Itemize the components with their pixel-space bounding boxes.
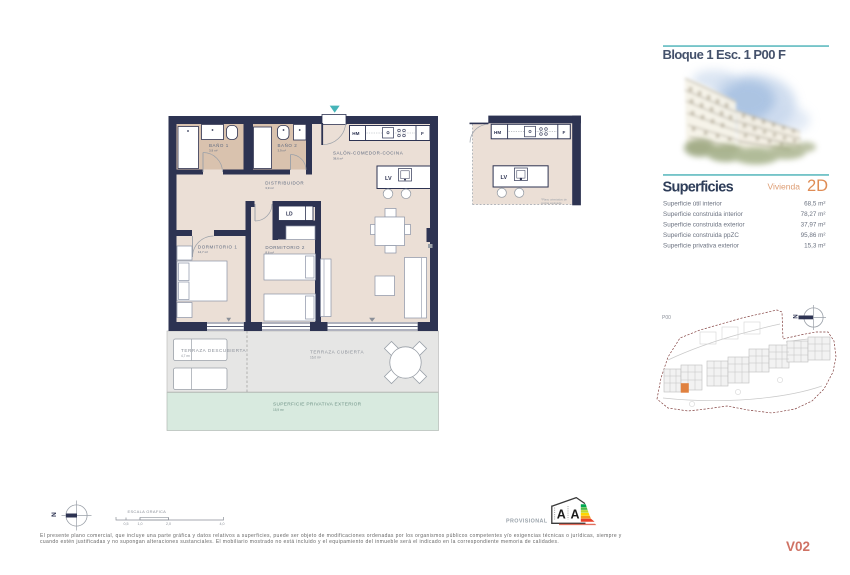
svg-text:LD: LD	[286, 212, 293, 218]
svg-text:HM: HM	[352, 131, 359, 136]
svg-text:3,9 m²: 3,9 m²	[209, 149, 218, 153]
svg-text:SUPERFICIE PRIVATIVA EXTERIOR: SUPERFICIE PRIVATIVA EXTERIOR	[273, 402, 362, 408]
svg-text:15,9 m²: 15,9 m²	[273, 408, 284, 412]
svg-text:Superficie útil interior: Superficie útil interior	[663, 200, 722, 207]
svg-text:DORMITORIO 2: DORMITORIO 2	[265, 245, 305, 250]
svg-text:SALÓN-COMEDOR-COCINA: SALÓN-COMEDOR-COCINA	[333, 150, 403, 156]
svg-text:16,0 m²: 16,0 m²	[310, 356, 321, 360]
svg-text:2,0: 2,0	[166, 522, 171, 526]
svg-text:cocina equipada: cocina equipada	[541, 201, 562, 205]
svg-text:F: F	[563, 130, 566, 135]
svg-text:LV: LV	[501, 175, 508, 181]
svg-text:Superficie privativa exterior: Superficie privativa exterior	[663, 243, 739, 250]
svg-text:DISTRIBUIDOR: DISTRIBUIDOR	[265, 181, 304, 186]
svg-text:N: N	[51, 512, 58, 517]
svg-text:Vivienda: Vivienda	[768, 182, 801, 192]
svg-text:Superficie construida ppZC: Superficie construida ppZC	[663, 232, 739, 239]
svg-text:4,0: 4,0	[220, 522, 225, 526]
svg-text:F: F	[421, 131, 424, 136]
svg-text:15,3 m²: 15,3 m²	[804, 243, 825, 250]
svg-text:14,7 m²: 14,7 m²	[198, 250, 208, 254]
svg-text:78,27 m²: 78,27 m²	[801, 211, 826, 218]
svg-text:cuando estén justificadas y no: cuando estén justificadas y no supongan …	[40, 539, 559, 545]
svg-text:A: A	[570, 507, 579, 521]
svg-text:HM: HM	[494, 130, 501, 135]
svg-text:TERRAZA DESCUBIERTA: TERRAZA DESCUBIERTA	[181, 348, 247, 353]
svg-text:68,5 m²: 68,5 m²	[804, 200, 825, 207]
svg-text:PROVISIONAL: PROVISIONAL	[506, 518, 548, 524]
svg-text:LV: LV	[385, 176, 392, 182]
svg-text:2D: 2D	[807, 177, 828, 195]
svg-text:0,5: 0,5	[124, 522, 129, 526]
svg-text:BAÑO 2: BAÑO 2	[278, 142, 298, 148]
svg-text:38,6 m²: 38,6 m²	[333, 156, 343, 160]
svg-text:95,86 m²: 95,86 m²	[801, 232, 826, 239]
svg-text:BAÑO 1: BAÑO 1	[209, 142, 229, 148]
svg-text:A: A	[557, 507, 566, 521]
svg-text:DORMITORIO 1: DORMITORIO 1	[198, 244, 238, 249]
svg-text:ESCALA GRAFICA: ESCALA GRAFICA	[128, 509, 167, 514]
svg-text:Bloque 1 Esc. 1 P00 F: Bloque 1 Esc. 1 P00 F	[663, 47, 786, 62]
svg-text:V02: V02	[786, 539, 810, 554]
svg-text:Superficies: Superficies	[663, 180, 734, 196]
svg-text:1,0: 1,0	[138, 522, 143, 526]
svg-text:N: N	[794, 314, 800, 318]
svg-text:P00: P00	[662, 315, 671, 321]
svg-text:3,9 m²: 3,9 m²	[265, 186, 274, 190]
svg-text:3,9 m²: 3,9 m²	[278, 149, 287, 153]
svg-text:Superficie construida exterior: Superficie construida exterior	[663, 222, 745, 229]
svg-text:37,97 m²: 37,97 m²	[801, 222, 826, 229]
svg-text:TERRAZA CUBIERTA: TERRAZA CUBIERTA	[310, 350, 364, 355]
svg-text:4,7 m²: 4,7 m²	[181, 354, 190, 358]
svg-text:Superficie construida interior: Superficie construida interior	[663, 211, 743, 218]
